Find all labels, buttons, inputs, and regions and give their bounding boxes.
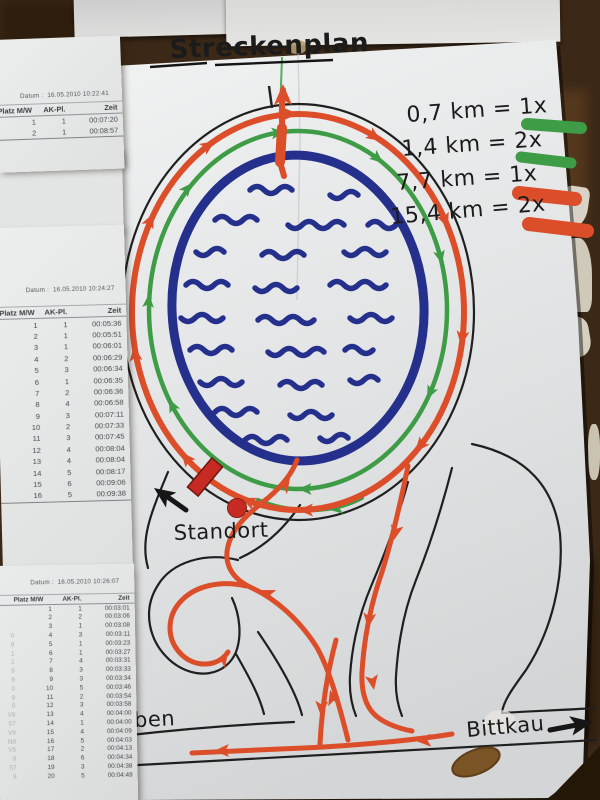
legend-swatch-red-2 bbox=[529, 224, 587, 231]
sheet3-datum: Datum : 16.05.2010 10:26:07 bbox=[30, 578, 134, 587]
result-sheet-2: Datum : 16.05.2010 10:24:27 Platz M/WAK-… bbox=[0, 225, 133, 570]
result-sheet-1: Datum : 16.05.2010 10:22:41 Platz M/WAK-… bbox=[0, 36, 125, 173]
sheet3-rows: 1100:03:012200:03:063100:03:0804300:03:1… bbox=[0, 603, 138, 781]
result-sheet-3: Datum : 16.05.2010 10:26:07 Platz M/WAK-… bbox=[0, 564, 138, 800]
sheet1-rows: 1100:07:202100:08:57 bbox=[0, 113, 123, 140]
table-row: 920500:04:49 bbox=[0, 770, 138, 781]
photo-of-course-plan-board: { "map": { "title": "Streckenplan", "leg… bbox=[0, 0, 600, 800]
sheet2-table: Platz M/WAK-Pl.Zeit 1100:05:362100:05:51… bbox=[0, 304, 131, 504]
sheet1-table: Platz M/WAK-Pl.Zeit 1100:07:202100:08:57 bbox=[0, 100, 123, 140]
sheet1-datum: Datum : 16.05.2010 10:22:41 bbox=[20, 89, 122, 100]
table-row: 16500:09:38 bbox=[1, 488, 131, 503]
sheet2-datum: Datum : 16.05.2010 10:24:27 bbox=[26, 285, 126, 295]
sheet2-rows: 1100:05:362100:05:513100:06:014200:06:29… bbox=[0, 317, 131, 504]
standort-dot bbox=[228, 499, 247, 518]
sheet3-table: Platz M/WAK-Pl.Zeit 1100:03:012200:03:06… bbox=[0, 593, 138, 782]
standort-label: Standort bbox=[173, 518, 269, 545]
